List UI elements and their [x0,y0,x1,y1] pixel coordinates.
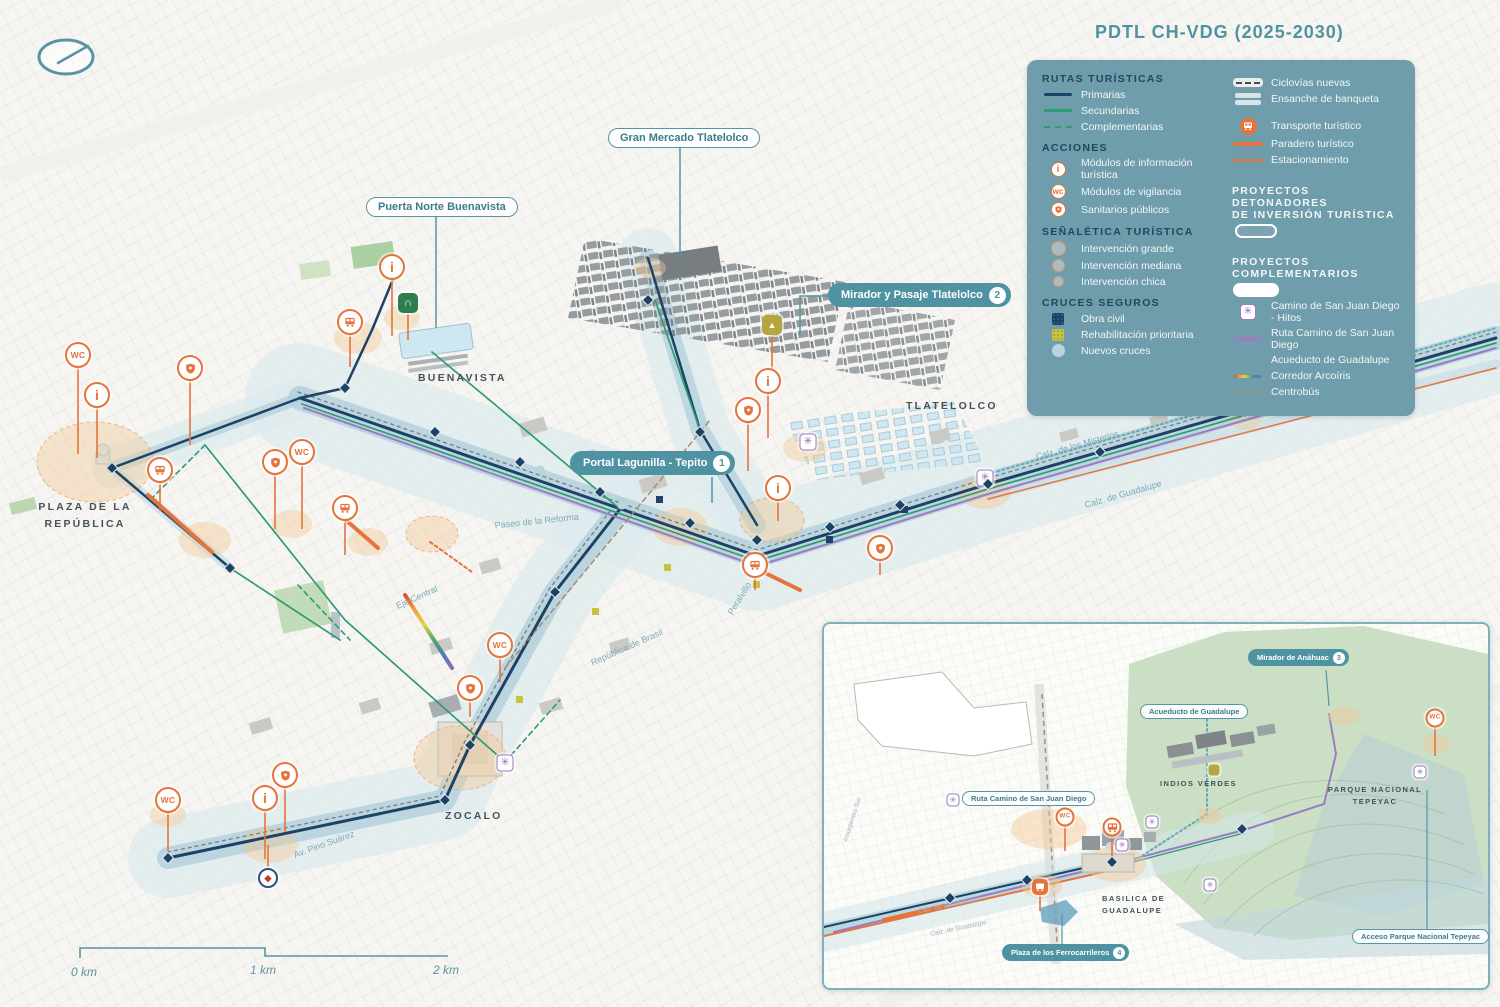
callout-mirador-anahuac: Mirador de Anáhuac 3 [1248,649,1349,666]
rehabilitacion-swatch [1042,329,1074,341]
legend-item-secundarias: Secundarias [1042,104,1220,117]
callout-mirador-tlatelolco: Mirador y Pasaje Tlatelolco 2 [828,283,1011,307]
area-label-parque-tepeyac: PARQUE NACIONAL TEPEYAC [1315,784,1435,808]
street-label: República de Brasil [589,627,664,668]
callout-plaza-ferrocarrileros: Plaza de los Ferrocarrileros 4 [1002,944,1129,961]
sign-small-swatch [1042,276,1074,287]
page-title: PDTL CH-VDG (2025-2030) [1095,22,1344,43]
legend-item-obra-civil: Obra civil [1042,312,1220,325]
legend-heading-rutas: RUTAS TURÍSTICAS [1042,73,1220,85]
area-label-basilica: BASILICA DE GUADALUPE [1102,893,1165,917]
compass-icon [39,40,93,74]
estacionamiento-swatch [1232,159,1264,162]
scale-bar: 0 km 1 km 2 km [71,948,459,979]
secundarias-swatch [1042,109,1074,112]
callout-gran-mercado: Gran Mercado Tlatelolco [608,128,760,148]
callout-badge: 2 [989,287,1006,304]
legend-item-complementarias: Complementarias [1042,120,1220,133]
acueducto-swatch [1232,359,1264,361]
legend-item-rehabilitacion: Rehabilitación prioritaria [1042,328,1220,341]
obra-civil-swatch [1042,313,1074,325]
legend-item-intervencion-chica: Intervención chica [1042,275,1220,288]
legend-heading-complementarios: PROYECTOS COMPLEMENTARIOS [1232,256,1400,280]
info-icon: i [1042,162,1074,177]
legend-item-modulos-vigilancia: wc Módulos de vigilancia [1042,184,1220,199]
legend-item-transporte: Transporte turístico [1232,118,1400,135]
scale-label-1km: 1 km [250,963,276,977]
centrobus-swatch [1232,391,1264,393]
legend-item-acueducto: Acueducto de Guadalupe [1232,354,1400,367]
legend-item-sanitarios: Sanitarios públicos [1042,202,1220,217]
legend-item-camino-hitos: ✳ Camino de San Juan Diego - Hitos [1232,300,1400,324]
detonadores-pill-swatch [1232,224,1280,238]
primarias-swatch [1042,93,1074,96]
legend-left-column: RUTAS TURÍSTICAS Primarias Secundarias C… [1042,73,1220,402]
callout-badge: 3 [1333,652,1345,664]
legend-item-nuevos-cruces: Nuevos cruces [1042,344,1220,357]
street-label: Insurgentes Sur [842,796,863,843]
legend-item-paradero: Paradero turístico [1232,138,1400,151]
legend-item-ruta-camino: Ruta Camino de San Juan Diego [1232,327,1400,351]
nuevos-cruces-swatch [1042,344,1074,357]
wc-icon: wc [1042,184,1074,199]
legend-item-intervencion-grande: Intervención grande [1042,241,1220,256]
shield-icon [1042,202,1074,217]
legend-item-intervencion-mediana: Intervención mediana [1042,259,1220,272]
legend-heading-senaletica: SEÑALÉTICA TURÍSTICA [1042,226,1220,238]
arcoiris-swatch [1232,375,1264,379]
legend-item-centrobus: Centrobús [1232,386,1400,399]
callout-ruta-camino: Ruta Camino de San Juan Diego [962,791,1095,806]
ruta-camino-swatch [1232,337,1264,341]
bus-icon [1232,118,1264,135]
legend-item-detonadores-swatch [1232,224,1400,238]
sign-large-swatch [1042,241,1074,256]
street-label: Eje Central [394,584,439,611]
scale-label-0km: 0 km [71,965,97,979]
legend-item-modulos-informacion: i Módulos de información turística [1042,157,1220,181]
legend-heading-acciones: ACCIONES [1042,142,1220,154]
scale-label-2km: 2 km [432,963,459,977]
complementarios-pill-swatch [1232,283,1280,297]
legend-item-ensanche: Ensanche de banqueta [1232,92,1400,106]
area-label-indios-verdes: INDIOS VERDES [1160,779,1237,788]
legend-panel: RUTAS TURÍSTICAS Primarias Secundarias C… [1027,60,1415,416]
area-label-tlatelolco: TLATELOLCO [906,400,998,412]
paradero-swatch [1232,142,1264,146]
sign-medium-swatch [1042,259,1074,272]
legend-item-arcoiris: Corredor Arcoíris [1232,370,1400,383]
hito-icon: ✳ [1232,304,1264,320]
legend-item-primarias: Primarias [1042,88,1220,101]
boundary-outline [854,672,1032,756]
callout-badge: 4 [1113,947,1125,959]
legend-heading-detonadores: PROYECTOS DETONADORES DE INVERSIÓN TURÍS… [1232,185,1400,221]
banqueta-swatch [1232,92,1264,106]
ciclovia-swatch [1232,78,1264,87]
callout-acceso-parque: Acceso Parque Nacional Tepeyac [1352,929,1489,944]
callout-puerta-norte: Puerta Norte Buenavista [366,197,518,217]
callout-portal-lagunilla: Portal Lagunilla - Tepito 1 [570,451,735,475]
tourism-map-poster[interactable]: Paseo de la Reforma Eje Central Repúblic… [0,0,1500,1007]
area-label-plaza-republica: PLAZA DE LA REPÚBLICA [30,499,140,533]
callout-acueducto: Acueducto de Guadalupe [1140,704,1248,719]
area-label-zocalo: ZOCALO [445,810,503,822]
callout-badge: 1 [713,455,730,472]
complementarias-swatch [1042,126,1074,128]
legend-item-complementarios-swatch [1232,283,1400,297]
legend-right-column: Ciclovías nuevas Ensanche de banqueta Tr… [1232,73,1400,402]
legend-heading-cruces: CRUCES SEGUROS [1042,297,1220,309]
legend-item-estacionamiento: Estacionamiento [1232,154,1400,167]
legend-item-ciclovias: Ciclovías nuevas [1232,76,1400,89]
area-label-buenavista: BUENAVISTA [418,372,507,384]
